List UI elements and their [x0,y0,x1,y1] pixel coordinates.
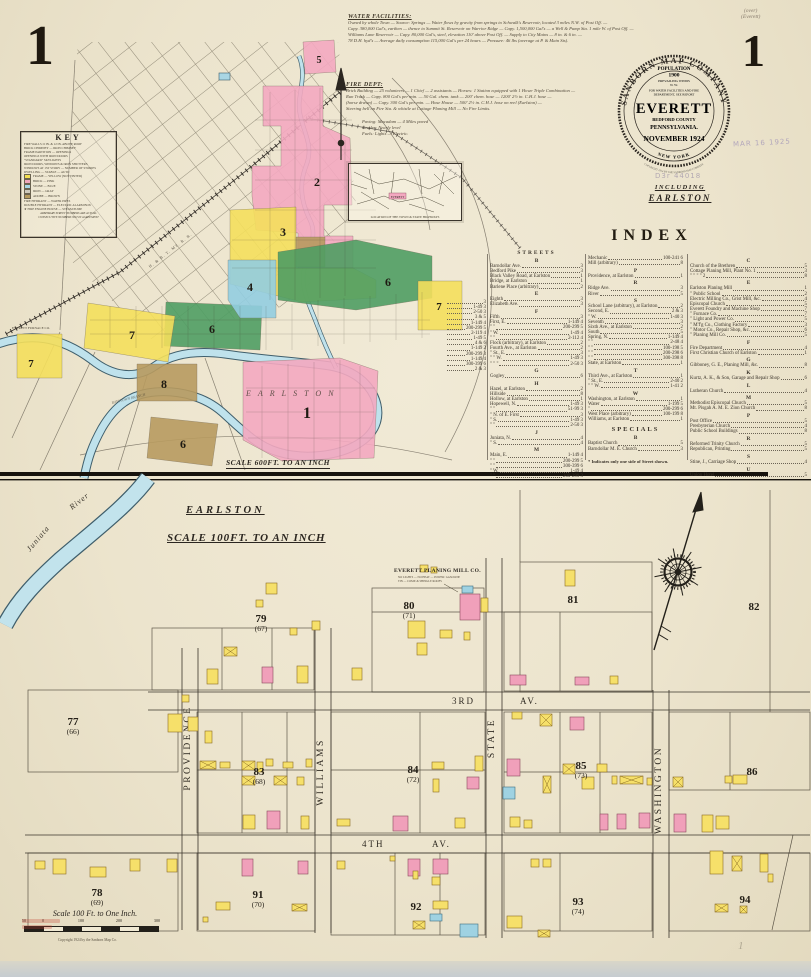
index-entry: Republican, Printing5 [690,447,807,452]
index-column-streets: STREETS BBarndollar Ave.3Bedford Pike3Bl… [490,250,583,479]
sanborn-seal: SANBORN MAP COMPANY POPULATION 1900 PREV… [608,38,740,180]
index-entry: " "200-299 3 [490,474,583,479]
water-facilities-note: WATER FACILITIES: Owned by whole Town — … [348,14,634,44]
index-column-specials: CChurch of the Brethren5Cottage Planing … [690,256,807,478]
building [575,677,589,685]
building [130,859,140,871]
building [168,714,182,732]
juniata-river-label: River [67,491,91,512]
building [262,667,273,683]
index-entry: First Christian Church of Earlston1 [690,351,807,356]
building [413,871,418,879]
pencil-note: 1 [738,940,744,952]
building [312,621,320,630]
building [612,776,617,784]
paving-note: Paving: Macadam — 4 Miles pavedGrades: N… [362,119,428,137]
district-number: 1 [303,405,311,422]
block-old-number: (68) [253,777,266,786]
index-entry: Elizabeth Ave.3 [490,302,583,307]
building [393,816,408,831]
bottom-map-title: EARLSTON [186,505,265,516]
building [464,632,470,640]
building [524,820,532,828]
index-entry: " " " " 28 [690,274,807,279]
building [597,764,607,772]
building [733,775,747,784]
section-divider [0,472,768,476]
building [503,787,515,799]
red-stamp [22,917,64,937]
block-number: 82 [749,601,761,613]
sanborn-map-sheet: 523664778617 EARLSTONH. & B. T. MT. R. R… [0,0,811,977]
svg-text:NEW YORK: NEW YORK [657,151,691,159]
district-block [17,334,62,378]
building [710,851,723,874]
building [433,859,448,874]
index-entry: " "2-50 3 [490,423,583,428]
index-entry: Williams, at Earlston1 [588,417,683,422]
block-number: 94 [740,894,752,906]
building [702,815,713,832]
seal-county: BEDFORD COUNTY [652,117,696,122]
building [432,877,440,885]
building [460,924,478,937]
seal-date: NOVEMBER 1924 [643,134,704,143]
map-key: KEY FIRE WALLS: 6 IN. & 12 IN. ABOVE ROO… [20,131,117,238]
index-entry: Gibboney, G. E., Planing Mill, &c.8 [690,363,807,368]
svg-text:N. W.: N. W. [670,83,678,87]
district-number: 8 [161,377,167,391]
locator-inset-map: EVERETT LOCATION OF THE TOWN & STATE HIG… [348,163,462,221]
street-label: WASHINGTON [654,746,664,834]
building [617,814,626,829]
earlston-spread-label: EARLSTON [245,389,341,398]
street-label: WILLIAMS [316,738,326,806]
seal-population: 1900 [669,73,680,79]
block-old-number: (69) [91,898,104,907]
building [716,816,729,829]
inset-roads: EVERETT [349,164,461,220]
building [455,818,465,828]
building [510,675,526,685]
svg-text:DEPARTMENT, SEE REPORT: DEPARTMENT, SEE REPORT [654,93,695,98]
building [220,762,230,768]
building [610,676,618,684]
building [283,762,293,768]
seal-state: PENNSYLVANIA. [650,125,698,131]
scale-tick: 100 [78,918,84,923]
building [243,815,255,829]
building [440,630,452,638]
sheet-number-left: 1 [26,14,54,78]
building [242,859,253,876]
building [507,759,520,776]
district-number: 7 [129,328,135,342]
building [256,600,263,607]
index-entry: Barlene Place (arbitrary)2 [490,285,583,290]
building [301,816,309,829]
building [768,874,773,882]
building [433,901,448,909]
building [205,731,212,743]
index-entry: " S.4 [490,441,583,446]
district-number: 7 [28,358,34,370]
corner-note: (over)(Everett) [741,8,760,20]
svg-text:COPYRIGHT 1924 BY THE SANBORN: COPYRIGHT 1924 BY THE SANBORN MAP COMPAN… [643,163,704,174]
planing-mill-label: EVERETT PLANING MILL CO. [394,568,481,574]
seal-population-label: POPULATION [658,67,691,72]
building [417,643,427,655]
building [674,814,686,832]
building [182,695,189,702]
juniata-river-label: Juniata [25,524,52,554]
planing-mill-sublabel: NO LIGHTS — NO HEAT — POWER: GASOLINETIN… [398,576,460,583]
street-label: STATE [487,718,497,758]
building [306,759,312,767]
street-label: 4TH [362,839,385,849]
building [90,867,106,877]
index-entry: Barndollar M. E. Church3 [588,447,683,452]
index-entry: River5 [588,292,683,297]
scale-tick: 300 [154,918,160,923]
index-column-2: Mechanic100-241 6Mill (arbitrary)8PProvi… [588,256,683,452]
building [600,814,608,830]
copyright-note: Copyright 1924 by the Sanborn Map Co. [58,938,117,942]
block-old-number: (67) [255,624,268,633]
bottom-map: PROVIDENCEWILLIAMSSTATEWASHINGTON3RDAV.4… [5,478,810,938]
district-number: 4 [247,280,253,294]
building [462,586,473,593]
building [408,621,425,638]
index-entry: Public School Buildings8 [690,429,807,434]
street-label: AV. [432,839,451,849]
index-specials-header: SPECIALS [588,426,683,433]
seal-office: NEW YORK [657,151,691,159]
index-entry: " " W.1-41 2 [588,384,683,389]
inset-caption: LOCATION OF THE TOWN & STATE HIGHWAYS [349,215,461,219]
index-entry: Mt. Pisgah A. M. E. Zion Church8 [690,406,807,411]
building [430,914,442,921]
block-old-number: (71) [403,611,416,620]
building [203,917,208,922]
building [337,819,350,826]
building [35,861,45,869]
building [647,778,652,785]
index-entry: Providence, at Earlston1 [588,274,683,279]
district-block [137,364,197,401]
building [433,779,439,792]
compass-rose-icon [654,492,703,650]
building [207,669,218,684]
building [510,817,520,827]
district-number: 6 [385,275,391,289]
section-divider-thin [0,479,811,480]
index-footnote: * Indicates only one side of Street show… [588,459,668,464]
building [565,570,575,586]
top-map-scale-label: SCALE 600FT. TO AN INCH [226,458,330,469]
building [570,717,584,730]
key-title: KEY [24,134,113,142]
block-number: 81 [568,594,579,606]
block-old-number: (70) [252,900,265,909]
index-entry: " Planing Mill Co.5 [690,333,807,338]
reservoir [219,73,230,80]
index-title: INDEX [572,227,732,245]
street-label: AV. [520,696,539,706]
building [467,777,479,789]
block-number: 92 [411,901,423,913]
building [352,668,362,680]
scale-tick: 200 [116,918,122,923]
district-number: 2 [314,175,320,189]
index-entry: 2 & 3 [446,367,486,372]
bottom-map-scale-label: SCALE 100FT. TO AN INCH [167,532,326,544]
index-entry: Stine, J., Carriage Shop4 [690,460,807,465]
building [481,598,488,612]
building [543,859,551,867]
district-number: 3 [280,225,286,239]
furnace-label: EVERETT FURNACE CO. [12,326,50,330]
building [297,666,308,683]
building [760,854,768,872]
building [298,861,308,874]
index-entry: " " "2-50 3 [490,362,583,367]
district-block [278,240,432,310]
building [512,712,522,719]
index-entry: Kurtz, A. K., & Son, Garage and Repair S… [690,376,807,381]
block-old-number: (72) [407,775,420,784]
seal-legal: COPYRIGHT 1924 BY THE SANBORN MAP COMPAN… [643,163,704,174]
building [475,756,483,771]
building [337,861,345,869]
building [290,628,297,635]
building [167,859,177,872]
backing-cloth-edge [0,961,811,977]
building [297,777,304,785]
district-number: 7 [436,301,442,313]
sheet-number-right: 1 [742,24,765,77]
seal-city: EVERETT [636,101,712,117]
index-entry: Mill (arbitrary)8 [588,261,683,266]
block-old-number: (66) [67,727,80,736]
including-note: INCLUDING EARLSTON [628,184,732,203]
building [266,759,273,766]
inset-town-label: EVERETT [391,195,404,199]
building [460,594,480,620]
building [725,776,732,783]
building [390,856,395,861]
district-number: 5 [317,55,322,66]
building [266,583,277,594]
block-old-number: (73) [575,771,588,780]
index-entry: Union Hotel5 [690,473,807,478]
building [531,859,539,867]
building [432,762,444,769]
fire-dept-note: FIRE DEPT: Brick Building — 25 volunteer… [346,82,575,112]
building [639,813,650,828]
district-number: 6 [180,437,186,451]
building [216,902,230,910]
block-old-number: (74) [572,907,585,916]
street-label: 3RD [452,696,475,706]
building [53,859,66,874]
index-entry: Lutheran Church4 [690,389,807,394]
block-number: 86 [747,766,759,778]
index-entry: Gogley6 [490,374,583,379]
building [507,916,522,928]
index-column-fragment: 31-49 32-50 33 & 51-149 4200-299 52-119 … [446,300,486,372]
building [188,717,198,731]
index-entry: State, at Earlston1 [588,361,683,366]
building [267,811,280,829]
